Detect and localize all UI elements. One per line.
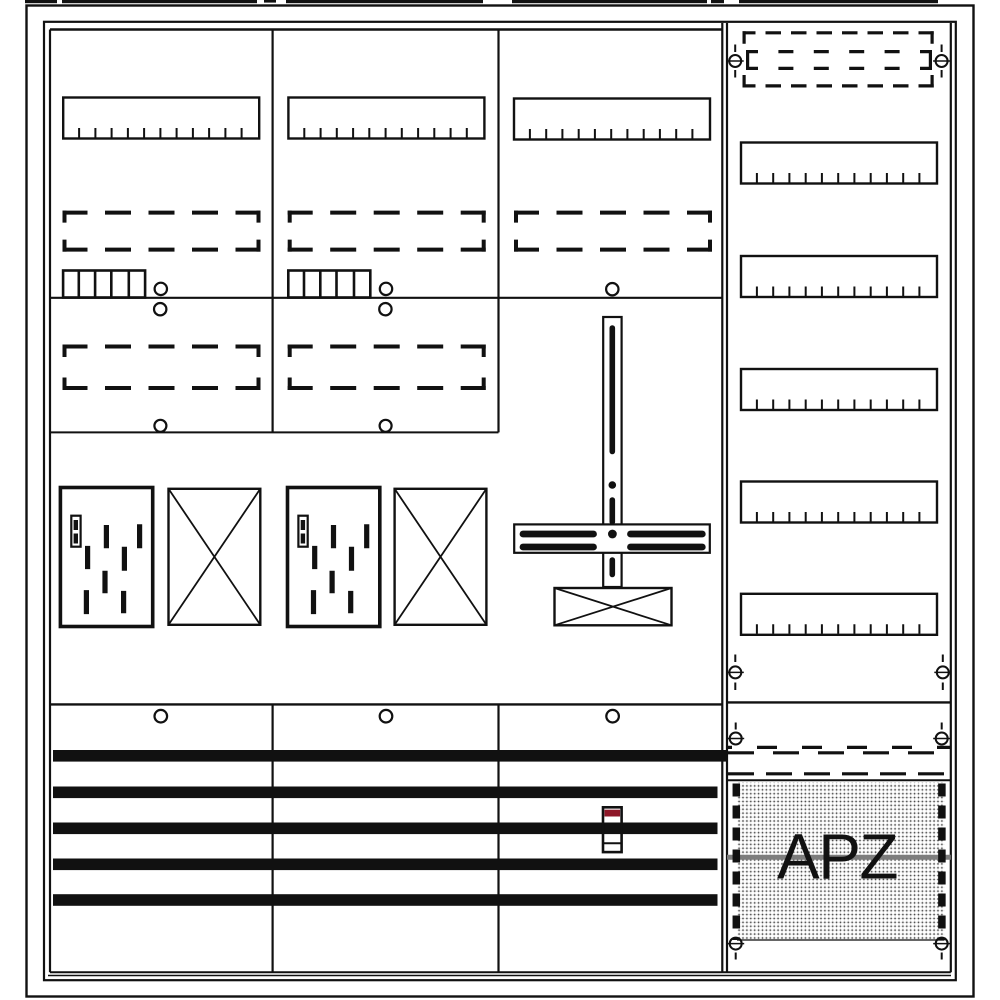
svg-text:APZ: APZ xyxy=(777,821,897,893)
